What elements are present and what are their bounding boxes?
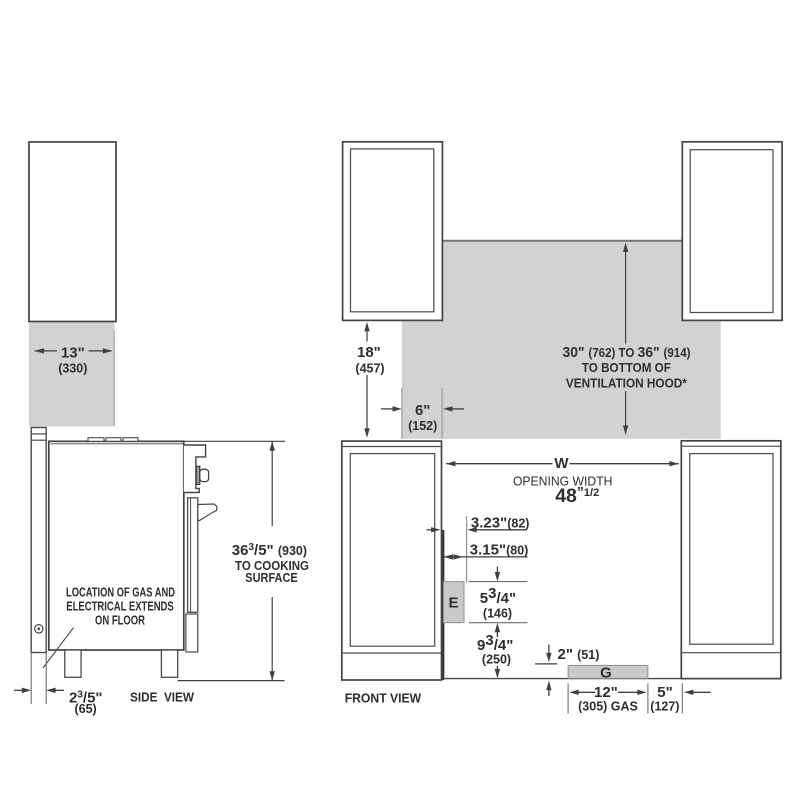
- svg-text:(457): (457): [355, 362, 384, 376]
- svg-text:(65): (65): [74, 702, 96, 716]
- svg-text:3.15"(80): 3.15"(80): [470, 542, 529, 559]
- svg-text:3.23"(82): 3.23"(82): [471, 514, 530, 531]
- svg-text:6": 6": [415, 402, 430, 419]
- svg-text:SIDE VIEW: SIDE VIEW: [130, 690, 194, 704]
- svg-text:(152): (152): [408, 419, 437, 433]
- svg-text:18": 18": [357, 344, 381, 361]
- svg-text:2" (51): 2" (51): [558, 646, 600, 663]
- svg-text:(127): (127): [650, 700, 679, 714]
- svg-text:(330): (330): [58, 362, 87, 376]
- svg-text:13": 13": [61, 345, 85, 362]
- svg-text:LOCATION OF GAS AND: LOCATION OF GAS AND: [66, 585, 175, 599]
- svg-text:30" (762) TO 36" (914): 30" (762) TO 36" (914): [563, 344, 691, 361]
- svg-text:363/5" (930): 363/5" (930): [232, 542, 307, 559]
- svg-text:(250): (250): [482, 653, 511, 667]
- svg-text:(305) GAS: (305) GAS: [578, 700, 638, 714]
- svg-text:VENTILATION HOOD*: VENTILATION HOOD*: [566, 376, 687, 390]
- svg-text:E: E: [448, 595, 458, 612]
- svg-text:93/4": 93/4": [477, 632, 513, 654]
- svg-text:SURFACE: SURFACE: [245, 571, 298, 585]
- svg-text:W: W: [554, 455, 569, 472]
- svg-text:48”1/2: 48”1/2: [555, 483, 599, 507]
- svg-text:(146): (146): [483, 606, 512, 620]
- svg-text:53/4": 53/4": [480, 585, 516, 607]
- svg-text:5": 5": [657, 684, 672, 701]
- svg-text:FRONT VIEW: FRONT VIEW: [345, 691, 422, 705]
- svg-text:ELECTRICAL EXTENDS: ELECTRICAL EXTENDS: [66, 599, 174, 613]
- svg-text:12": 12": [594, 684, 618, 701]
- svg-text:G: G: [600, 665, 612, 682]
- svg-text:TO BOTTOM OF: TO BOTTOM OF: [582, 361, 671, 375]
- svg-text:ON FLOOR: ON FLOOR: [95, 614, 145, 628]
